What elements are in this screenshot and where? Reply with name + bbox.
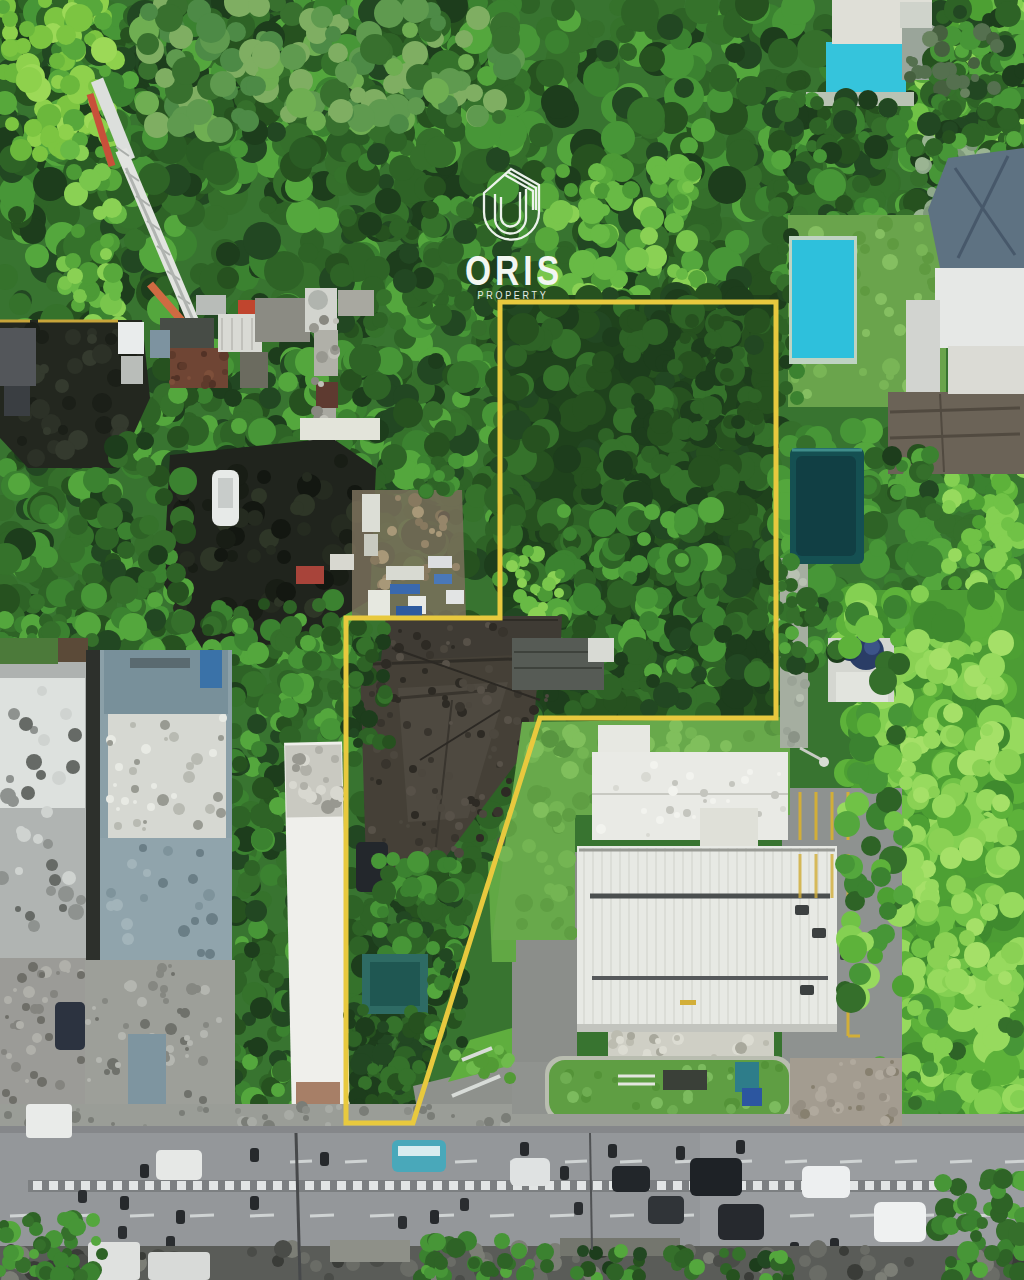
- svg-text:PROPERTY: PROPERTY: [478, 290, 549, 302]
- svg-text:ORIS: ORIS: [465, 247, 563, 293]
